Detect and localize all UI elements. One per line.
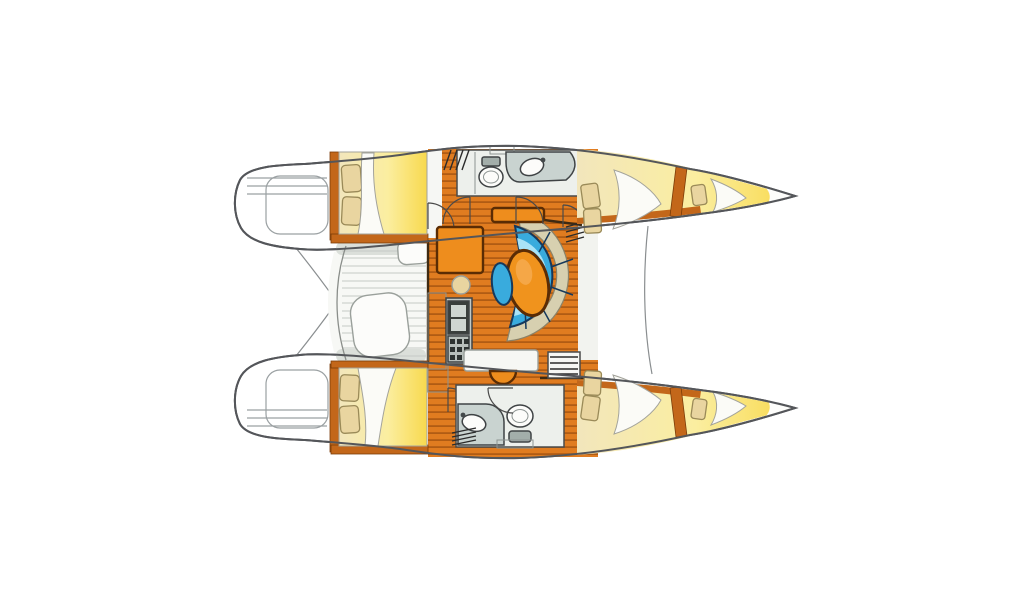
cockpit-cushion-large: [348, 291, 411, 359]
catamaran-floor-plan: [0, 0, 1024, 600]
saloon-cabinet: [492, 208, 544, 222]
port-forward-cabin: [577, 149, 793, 233]
pillow: [339, 375, 359, 402]
pillow: [339, 405, 360, 433]
faucet: [461, 413, 466, 418]
pillow: [691, 184, 708, 206]
pillow: [341, 197, 361, 226]
galley-sink: [448, 301, 469, 334]
sink-basin: [451, 319, 466, 331]
starboard-aft-cabin: [330, 361, 428, 454]
toilet-bowl: [507, 405, 533, 427]
companionway-landing: [427, 150, 442, 238]
cockpit: [328, 239, 431, 364]
pillow: [583, 371, 601, 396]
pillow: [341, 164, 362, 192]
crossbeam-line: [645, 226, 652, 374]
head-aft: [452, 385, 564, 448]
wood-trim: [331, 234, 428, 243]
stern-line: [296, 248, 334, 298]
toilet-bowl: [479, 167, 503, 187]
wood-trim: [330, 152, 339, 240]
pillow: [583, 209, 601, 234]
pillow: [580, 395, 600, 421]
nav-desk: [437, 227, 483, 273]
pillow: [691, 398, 708, 420]
toilet-tank: [482, 157, 500, 166]
pillow: [580, 183, 600, 209]
stern-line: [296, 306, 334, 356]
port-aft-cabin: [330, 152, 428, 243]
wood-trim: [330, 364, 339, 452]
nav-stool: [452, 276, 470, 294]
faucet: [541, 158, 546, 163]
sink-basin: [451, 305, 466, 317]
toilet: [507, 405, 533, 442]
starboard-forward-cabin: [577, 371, 793, 455]
toilet: [479, 157, 503, 187]
boat-floor-plan-canvas: [0, 0, 1024, 600]
